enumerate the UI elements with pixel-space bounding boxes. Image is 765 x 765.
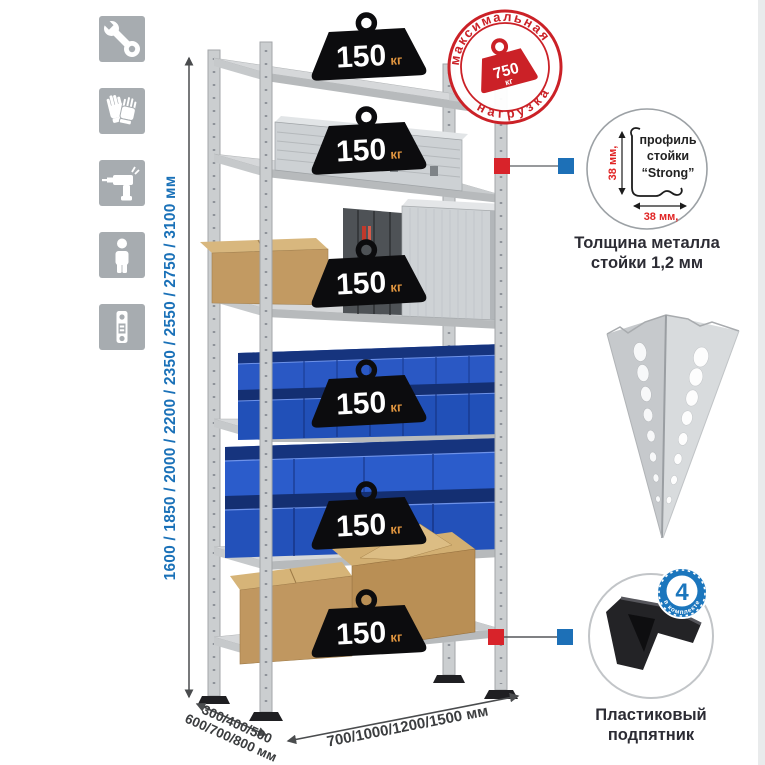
svg-text:150: 150	[335, 266, 387, 302]
max-load-stamp: максимальная нагрузка 750 кг	[436, 0, 574, 136]
svg-text:кг: кг	[390, 52, 403, 68]
rack-illustration: 150 кг 150 кг 150 кг 150 кг 150 кг	[0, 0, 765, 765]
shelving-infographic: 150 кг 150 кг 150 кг 150 кг 150 кг	[0, 0, 765, 765]
svg-text:4: 4	[675, 579, 689, 606]
foot-caption: Пластиковый подпятник	[556, 705, 746, 745]
foot-caption-line1: Пластиковый	[556, 705, 746, 725]
svg-text:кг: кг	[390, 279, 403, 295]
load-badge-1: 150 кг	[309, 12, 427, 81]
count-badge: 4 в комплекте	[657, 568, 707, 618]
upright-profile-photo	[607, 315, 739, 538]
svg-text:38 мм,: 38 мм,	[607, 146, 619, 181]
profile-callout-connector	[494, 158, 574, 174]
svg-text:150: 150	[335, 39, 387, 75]
svg-text:кг: кг	[390, 629, 403, 645]
profile-caption-line2: стойки 1,2 мм	[552, 253, 742, 273]
svg-text:150: 150	[335, 616, 387, 652]
foot-caption-line2: подпятник	[556, 725, 746, 745]
svg-text:150: 150	[335, 508, 387, 544]
svg-text:кг: кг	[390, 521, 403, 537]
profile-caption: Толщина металла стойки 1,2 мм	[552, 233, 742, 273]
svg-text:“Strong”: “Strong”	[642, 166, 695, 180]
svg-text:стойки: стойки	[647, 149, 689, 163]
svg-text:38 мм,: 38 мм,	[644, 211, 679, 223]
profile-detail-circle: 38 мм, 38 мм, профиль стойки “Strong”	[587, 109, 707, 229]
profile-caption-line1: Толщина металла	[552, 233, 742, 253]
load-badge-2: 150 кг	[309, 106, 427, 175]
svg-text:профиль: профиль	[639, 133, 696, 147]
height-dimension-label: 1600 / 1850 / 2000 / 2200 / 2350 / 2550 …	[162, 176, 180, 581]
svg-text:кг: кг	[390, 146, 403, 162]
foot-callout-connector	[488, 629, 573, 645]
svg-text:кг: кг	[390, 399, 403, 415]
page-edge	[758, 0, 765, 765]
svg-text:150: 150	[335, 386, 387, 422]
svg-text:150: 150	[335, 133, 387, 169]
